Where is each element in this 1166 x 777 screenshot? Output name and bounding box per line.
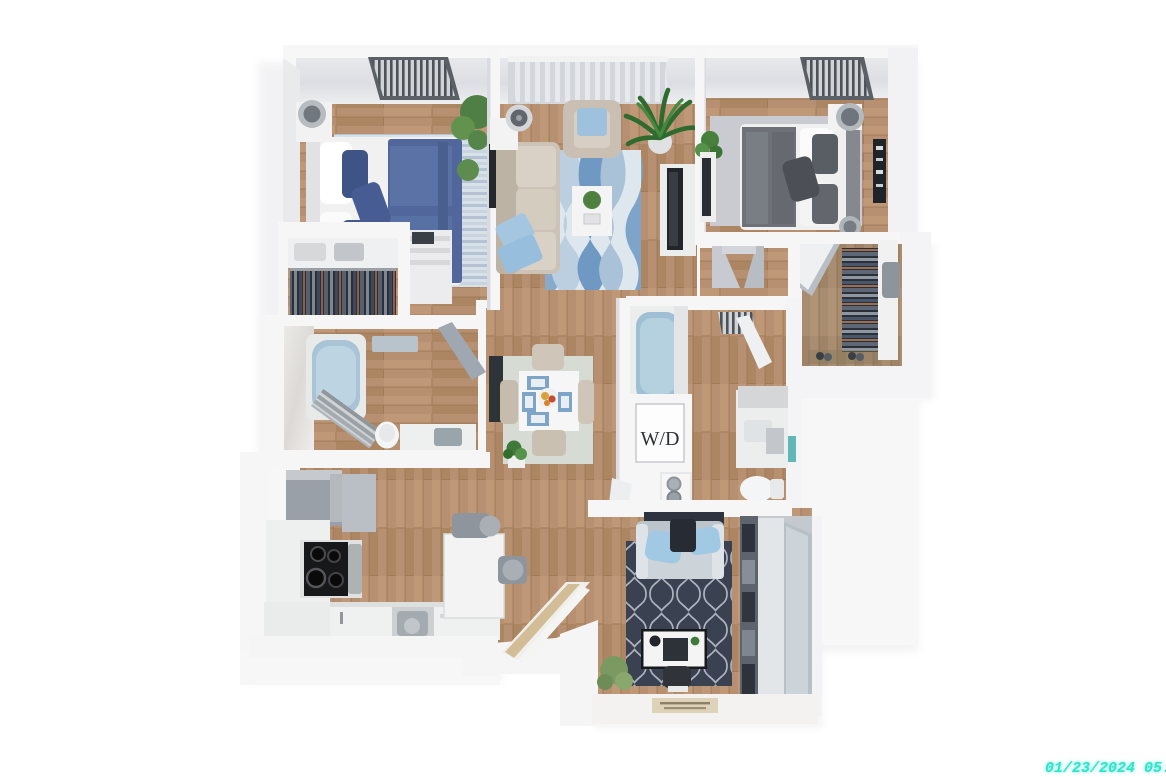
svg-text:W/D: W/D — [641, 428, 680, 450]
svg-text:01/23/2024 05:1: 01/23/2024 05:1 — [1045, 760, 1166, 777]
